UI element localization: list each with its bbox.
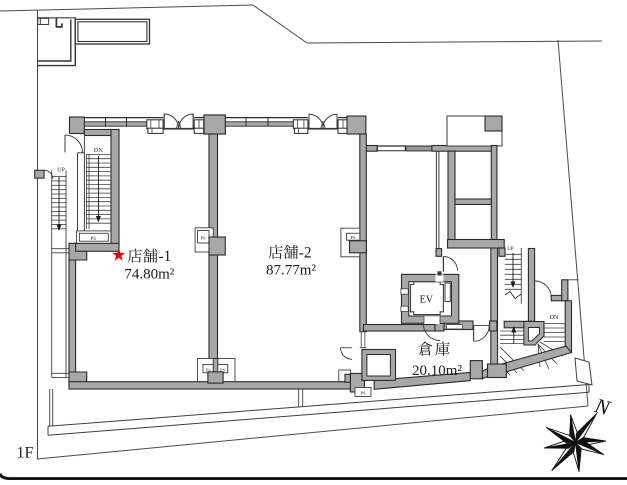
svg-text:PS: PS bbox=[201, 236, 207, 241]
svg-text:UP: UP bbox=[57, 168, 65, 174]
svg-text:UP: UP bbox=[507, 247, 513, 252]
svg-text:EV: EV bbox=[420, 295, 434, 306]
svg-text:PS: PS bbox=[91, 237, 97, 242]
svg-text:74.80m²: 74.80m² bbox=[124, 267, 174, 283]
svg-text:-2: -2 bbox=[299, 245, 312, 262]
svg-text:PS: PS bbox=[350, 235, 356, 240]
svg-text:87.77m²: 87.77m² bbox=[266, 262, 316, 278]
svg-text:DN: DN bbox=[550, 315, 559, 321]
svg-text:20.10m²: 20.10m² bbox=[412, 363, 462, 379]
svg-text:DN: DN bbox=[94, 147, 103, 154]
svg-text:1F: 1F bbox=[17, 445, 34, 462]
svg-text:-1: -1 bbox=[159, 248, 172, 265]
svg-text:PS: PS bbox=[360, 390, 366, 395]
